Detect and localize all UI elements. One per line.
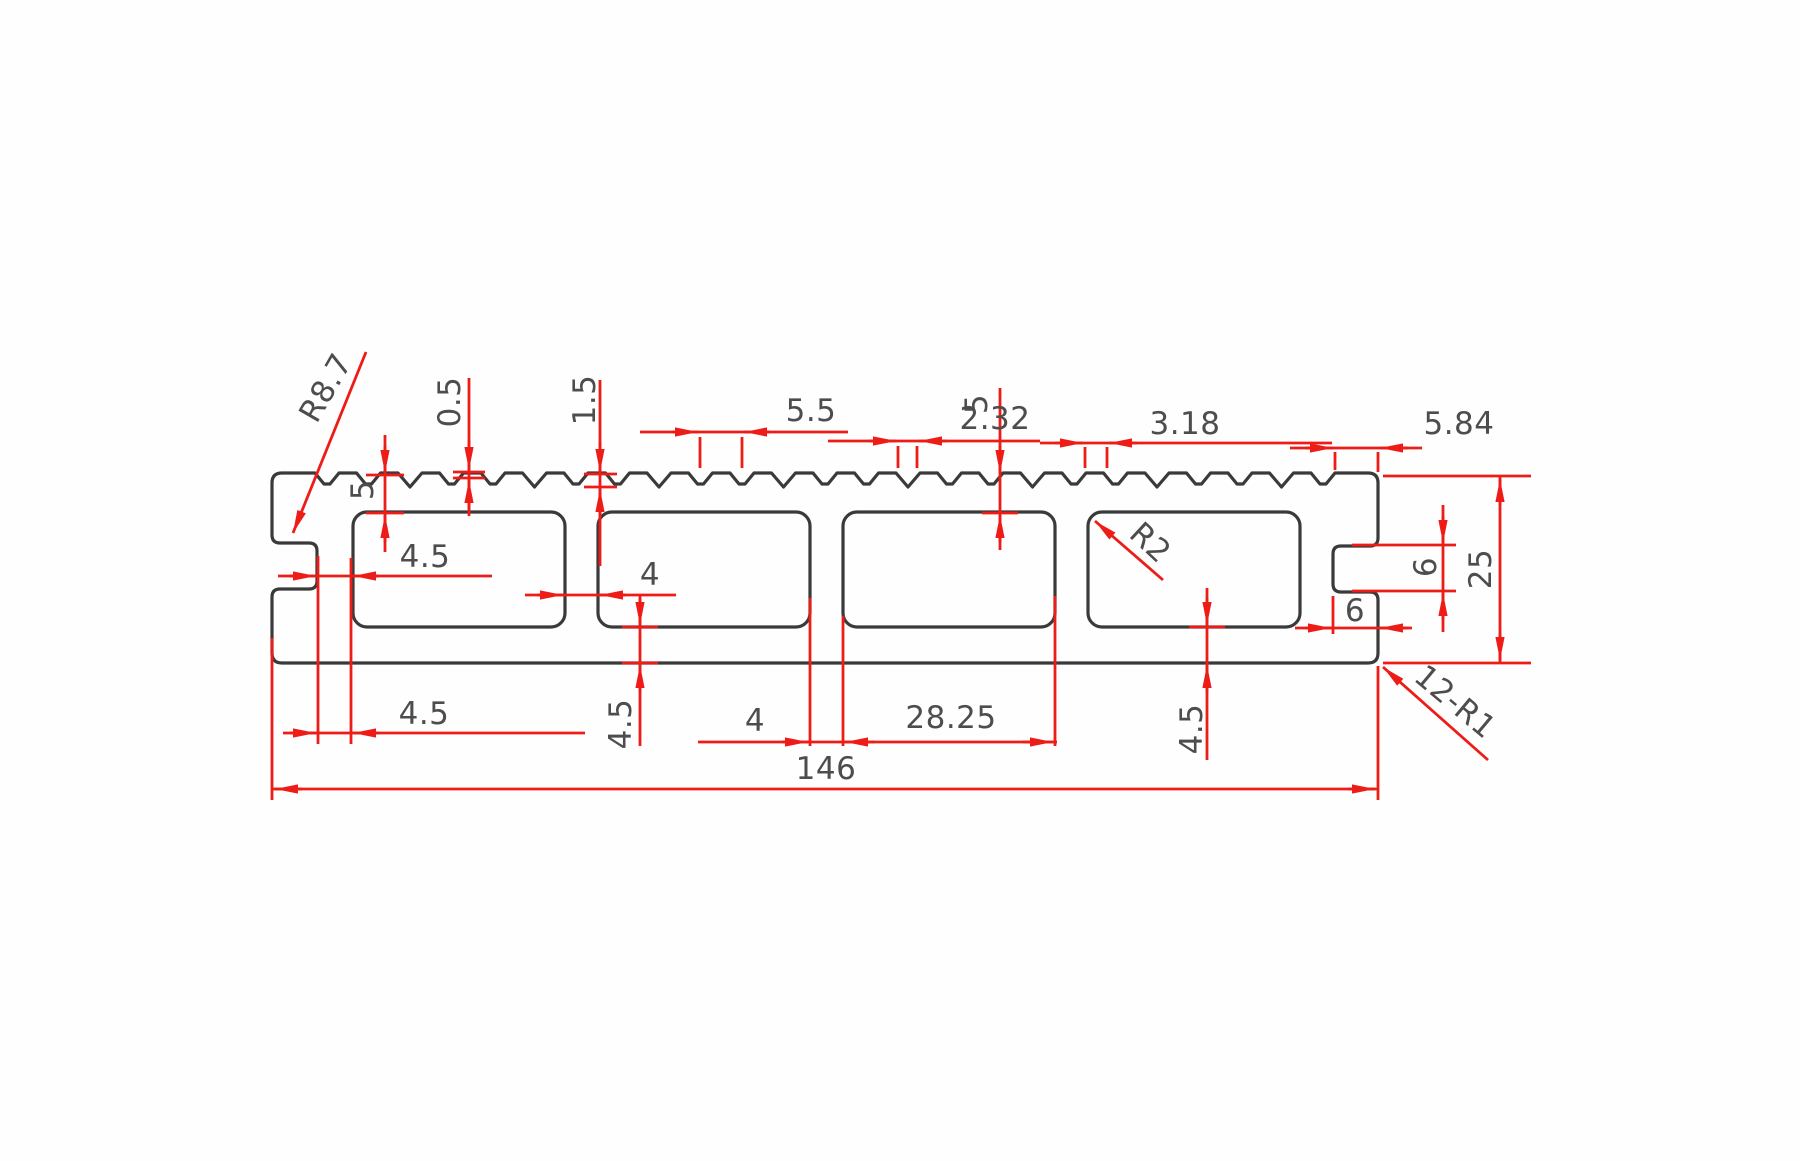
dim-label-45-right: 4.5 (1174, 704, 1210, 755)
dim-top-flat-right: 5.84 (1290, 406, 1495, 472)
dim-label-5-left: 5 (345, 480, 381, 500)
dim-label-45-upper: 4.5 (400, 539, 451, 575)
dim-tooth-pitch-a: 2.32 (828, 401, 1040, 468)
cad-drawing-page: R8.7 0.5 1.5 5.5 (0, 0, 1800, 1161)
dim-chamber-corner-radius: R2 (1095, 515, 1178, 580)
dim-label-05: 0.5 (432, 377, 468, 428)
dim-label-146: 146 (796, 751, 857, 787)
dim-tooth-pitch-b: 3.18 (1040, 406, 1332, 468)
dim-tooth-group-pitch: 5.5 (640, 393, 848, 468)
dim-web-left-lower: 4.5 (283, 696, 585, 733)
chamber-2 (598, 512, 810, 627)
dim-overall-height: 25 (1383, 476, 1531, 663)
dim-label-4-lower: 4 (745, 703, 765, 739)
dim-label-318: 3.18 (1149, 406, 1220, 442)
dim-label-584: 5.84 (1423, 406, 1494, 442)
dim-label-6h: 6 (1345, 593, 1365, 629)
dim-bottom-wall-center: 4.5 (603, 595, 658, 749)
dim-tooth-major-depth: 1.5 (567, 375, 617, 566)
decking-profile-drawing: R8.7 0.5 1.5 5.5 (0, 0, 1800, 1161)
dim-label-4-upper: 4 (640, 557, 660, 593)
dim-chamber-bottom: 4 28.25 (698, 596, 1057, 746)
dim-fillet-note: 12-R1 (1383, 658, 1503, 760)
dim-groove-depth: 6 (1295, 593, 1412, 634)
dim-groove-height: 6 (1352, 505, 1456, 632)
dim-label-45-center: 4.5 (603, 699, 639, 750)
dim-corner-radius-top-left: R8.7 (292, 347, 366, 533)
dimensions: R8.7 0.5 1.5 5.5 (272, 347, 1531, 800)
dim-bottom-wall-right: 4.5 (1174, 588, 1225, 760)
dim-label-45-lower: 4.5 (399, 696, 450, 732)
dim-label-232: 2.32 (959, 401, 1030, 437)
dim-label-r2: R2 (1122, 515, 1177, 570)
dim-label-6v: 6 (1408, 557, 1444, 577)
dim-label-2825: 28.25 (905, 700, 996, 736)
chamber-4 (1088, 512, 1300, 627)
dim-label-55: 5.5 (786, 393, 837, 429)
dim-tooth-minor-depth: 0.5 (432, 377, 485, 516)
dim-label-15: 1.5 (567, 375, 603, 426)
dim-label-25: 25 (1463, 549, 1499, 589)
ext-lines-left-web (318, 556, 351, 744)
chamber-3 (843, 512, 1055, 627)
dim-label-r87: R8.7 (292, 347, 360, 428)
